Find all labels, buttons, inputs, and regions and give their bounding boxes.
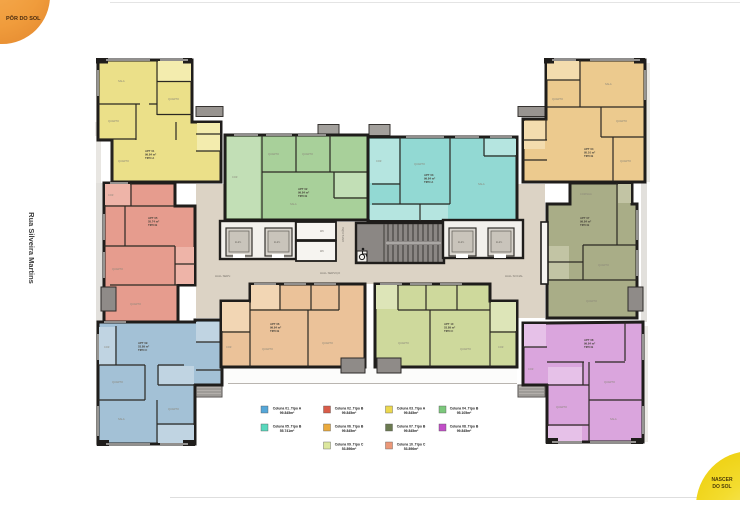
svg-text:TIPO B: TIPO B <box>148 223 157 227</box>
svg-text:QUARTO: QUARTO <box>398 341 409 345</box>
svg-text:COZ: COZ <box>376 159 382 163</box>
svg-text:QUARTO: QUARTO <box>556 405 567 409</box>
svg-text:99.845m²: 99.845m² <box>457 429 472 433</box>
svg-text:SALA: SALA <box>118 79 125 83</box>
svg-text:NASCER: NASCER <box>711 477 733 483</box>
svg-text:QUARTO: QUARTO <box>130 302 141 306</box>
svg-text:99.845m²: 99.845m² <box>404 429 419 433</box>
svg-text:COZ: COZ <box>528 367 534 371</box>
svg-text:COZ: COZ <box>498 345 504 349</box>
svg-text:TIPO B: TIPO B <box>270 329 279 333</box>
svg-text:TIPO A: TIPO A <box>424 180 433 184</box>
svg-text:WC: WC <box>320 250 324 253</box>
svg-text:ELEV.: ELEV. <box>235 241 242 244</box>
svg-text:SALA: SALA <box>118 417 125 421</box>
svg-text:TIPO B: TIPO B <box>584 154 593 158</box>
svg-text:QUARTO: QUARTO <box>620 159 631 163</box>
svg-text:COZ: COZ <box>232 175 238 179</box>
svg-text:QUARTO: QUARTO <box>112 267 123 271</box>
svg-text:QUARTO: QUARTO <box>552 97 563 101</box>
svg-text:55.741m²: 55.741m² <box>280 429 295 433</box>
svg-text:DO SOL: DO SOL <box>712 484 731 490</box>
svg-text:TIPO C: TIPO C <box>138 348 147 352</box>
svg-text:53.896m²: 53.896m² <box>404 447 419 451</box>
svg-text:QUARTO: QUARTO <box>112 380 123 384</box>
svg-text:QUARTO: QUARTO <box>586 299 597 303</box>
svg-text:QUARTO: QUARTO <box>268 152 279 156</box>
svg-text:99.845m²: 99.845m² <box>342 411 357 415</box>
svg-text:PÔR DO SOL: PÔR DO SOL <box>6 14 41 22</box>
svg-text:TIPO A: TIPO A <box>145 156 154 160</box>
svg-text:QUARTO: QUARTO <box>118 159 129 163</box>
svg-text:TIPO B: TIPO B <box>298 194 307 198</box>
svg-text:COZ: COZ <box>104 345 110 349</box>
svg-text:QUARTO: QUARTO <box>302 152 313 156</box>
svg-text:QUARTO: QUARTO <box>322 341 333 345</box>
svg-text:QUARTO: QUARTO <box>604 380 615 384</box>
svg-text:QUARTO: QUARTO <box>108 119 119 123</box>
svg-text:TIPO C: TIPO C <box>444 329 453 333</box>
svg-text:QUARTO: QUARTO <box>616 119 627 123</box>
svg-text:QUARTO: QUARTO <box>262 347 273 351</box>
svg-text:Rua Silveira Martins: Rua Silveira Martins <box>27 212 36 284</box>
svg-text:SALA: SALA <box>290 202 297 206</box>
svg-text:HALL SOCIAL: HALL SOCIAL <box>505 274 523 278</box>
svg-text:SALA: SALA <box>605 82 612 86</box>
svg-text:ANTE CÂM.: ANTE CÂM. <box>340 227 345 242</box>
svg-text:QUARTO: QUARTO <box>168 407 179 411</box>
svg-text:53.896m²: 53.896m² <box>342 447 357 451</box>
svg-text:99.845m²: 99.845m² <box>280 411 295 415</box>
svg-text:QUARTO: QUARTO <box>168 97 179 101</box>
svg-text:ELEV.: ELEV. <box>458 241 465 244</box>
svg-text:HALL SERV.: HALL SERV. <box>215 274 231 278</box>
svg-text:99.845m²: 99.845m² <box>404 411 419 415</box>
svg-text:ELEV.: ELEV. <box>496 241 503 244</box>
svg-text:QUARTO: QUARTO <box>460 347 471 351</box>
svg-text:HALL SERVIÇO: HALL SERVIÇO <box>320 271 341 275</box>
svg-text:COZ: COZ <box>226 345 232 349</box>
svg-text:99.845m²: 99.845m² <box>342 429 357 433</box>
svg-text:ELEV.: ELEV. <box>274 241 281 244</box>
svg-text:WC: WC <box>320 230 324 233</box>
svg-text:SALA: SALA <box>478 182 485 186</box>
svg-text:95.105m²: 95.105m² <box>457 411 472 415</box>
svg-text:QUARTO: QUARTO <box>598 263 609 267</box>
svg-text:QUARTO: QUARTO <box>414 162 425 166</box>
svg-text:TIPO B: TIPO B <box>580 223 589 227</box>
svg-text:SALA: SALA <box>610 417 617 421</box>
svg-text:COZ: COZ <box>108 193 114 197</box>
svg-text:COZINHA: COZINHA <box>580 192 592 196</box>
svg-text:TIPO B: TIPO B <box>584 345 593 349</box>
